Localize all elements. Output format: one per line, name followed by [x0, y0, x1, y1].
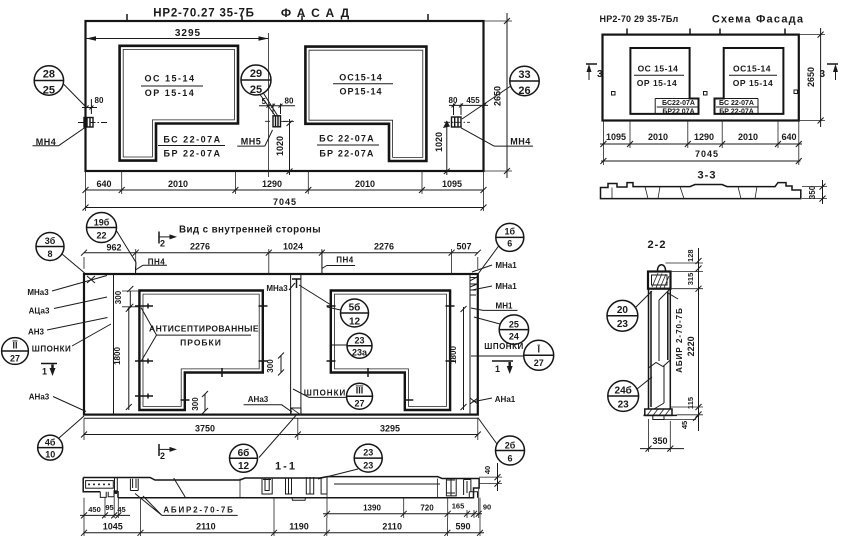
svg-text:20: 20	[617, 305, 629, 316]
svg-text:ШПОНКИ: ШПОНКИ	[304, 389, 346, 398]
svg-text:28: 28	[43, 69, 55, 81]
svg-text:45: 45	[680, 421, 689, 429]
svg-text:1б: 1б	[505, 227, 516, 237]
svg-text:7045: 7045	[695, 149, 719, 159]
svg-text:2-2: 2-2	[648, 239, 667, 251]
svg-text:12: 12	[349, 317, 361, 328]
svg-text:ОР15-14: ОР15-14	[339, 87, 382, 97]
svg-text:24б: 24б	[615, 385, 632, 397]
svg-text:720: 720	[420, 504, 434, 513]
svg-text:45: 45	[117, 505, 125, 514]
svg-text:III: III	[356, 386, 364, 396]
svg-text:2650: 2650	[806, 67, 816, 87]
svg-text:АН3: АН3	[28, 328, 45, 337]
svg-text:315: 315	[686, 273, 695, 286]
svg-text:МНа3: МНа3	[27, 288, 49, 297]
svg-text:3: 3	[597, 69, 603, 80]
svg-text:1095: 1095	[442, 179, 462, 189]
svg-text:БР 22-07А: БР 22-07А	[164, 149, 222, 159]
svg-text:962: 962	[106, 243, 121, 253]
svg-text:ОР 15-14: ОР 15-14	[637, 78, 677, 88]
svg-text:27: 27	[354, 399, 364, 409]
svg-text:1024: 1024	[283, 242, 303, 252]
svg-text:300: 300	[266, 359, 275, 373]
svg-text:АНТИСЕПТИРОВАННЫЕ: АНТИСЕПТИРОВАННЫЕ	[149, 324, 259, 334]
svg-text:ОС15-14: ОС15-14	[733, 64, 771, 74]
svg-text:АБИР2-70-7Б: АБИР2-70-7Б	[163, 506, 234, 515]
svg-text:1020: 1020	[434, 132, 444, 152]
svg-text:1190: 1190	[289, 522, 309, 532]
svg-text:ПН4: ПН4	[336, 256, 354, 265]
svg-text:АНа3: АНа3	[248, 395, 269, 404]
svg-text:1095: 1095	[606, 132, 626, 142]
svg-text:БР 22-07А: БР 22-07А	[719, 108, 754, 115]
svg-text:95: 95	[105, 503, 113, 512]
svg-text:3750: 3750	[195, 424, 215, 434]
svg-text:6б: 6б	[238, 447, 250, 459]
svg-text:МН5: МН5	[241, 137, 262, 147]
svg-text:2010: 2010	[355, 179, 375, 189]
svg-text:3б: 3б	[45, 236, 56, 246]
svg-text:2276: 2276	[374, 242, 394, 252]
svg-text:АНа1: АНа1	[495, 395, 516, 404]
svg-text:24: 24	[509, 331, 519, 341]
svg-text:ФАСАД: ФАСАД	[281, 6, 355, 20]
svg-text:23: 23	[363, 448, 373, 458]
svg-text:300: 300	[114, 290, 123, 304]
svg-text:БС 22-07А: БС 22-07А	[319, 134, 375, 144]
svg-text:МНа1: МНа1	[495, 261, 517, 270]
svg-text:22: 22	[96, 231, 106, 241]
svg-text:2010: 2010	[168, 179, 188, 189]
svg-text:40: 40	[483, 466, 492, 474]
svg-text:23: 23	[618, 400, 630, 411]
svg-text:300: 300	[191, 397, 200, 411]
svg-text:2010: 2010	[648, 132, 668, 142]
svg-text:МНа3: МНа3	[266, 284, 288, 293]
svg-text:6: 6	[507, 239, 512, 249]
svg-text:ОС15-14: ОС15-14	[339, 73, 383, 83]
svg-text:25: 25	[250, 84, 262, 96]
svg-text:НР2-70 29 35-7Бл: НР2-70 29 35-7Бл	[600, 14, 679, 24]
svg-text:ПРОБКИ: ПРОБКИ	[180, 338, 222, 348]
svg-text:ОР 15-14: ОР 15-14	[145, 88, 196, 98]
svg-text:7045: 7045	[273, 197, 297, 207]
svg-text:1800: 1800	[113, 347, 122, 365]
svg-text:ОС 15-14: ОС 15-14	[144, 74, 195, 84]
svg-text:БС 22-07А: БС 22-07А	[163, 135, 221, 145]
svg-text:ОС 15-14: ОС 15-14	[638, 64, 679, 74]
svg-text:2010: 2010	[738, 132, 758, 142]
svg-text:115: 115	[686, 397, 695, 409]
svg-text:АЦа3: АЦа3	[29, 307, 50, 316]
svg-text:507: 507	[456, 242, 471, 252]
svg-text:1045: 1045	[103, 522, 123, 532]
svg-text:23: 23	[363, 461, 373, 471]
svg-text:128: 128	[686, 249, 695, 262]
svg-text:МН4: МН4	[510, 136, 531, 146]
svg-text:5б: 5б	[349, 302, 361, 314]
svg-text:27: 27	[534, 358, 544, 368]
svg-text:Схема Фасада: Схема Фасада	[712, 14, 804, 26]
svg-text:БР 22-07А: БР 22-07А	[319, 149, 374, 159]
svg-text:23: 23	[354, 336, 364, 346]
svg-text:МН1: МН1	[496, 301, 513, 310]
svg-text:12: 12	[238, 461, 250, 472]
svg-text:590: 590	[455, 522, 470, 532]
svg-text:640: 640	[96, 179, 111, 189]
svg-text:25: 25	[43, 85, 55, 97]
svg-text:10: 10	[45, 450, 55, 460]
svg-text:25: 25	[509, 319, 519, 329]
svg-text:450: 450	[88, 505, 101, 514]
svg-text:1290: 1290	[694, 132, 714, 142]
svg-text:3295: 3295	[175, 28, 201, 39]
svg-text:БР22 07А: БР22 07А	[662, 108, 694, 115]
svg-text:1-1: 1-1	[275, 461, 297, 473]
svg-text:19б: 19б	[94, 218, 110, 228]
svg-text:БС 22-07А: БС 22-07А	[719, 100, 754, 107]
svg-text:I: I	[537, 345, 540, 355]
svg-text:ШПОНКИ: ШПОНКИ	[32, 345, 71, 354]
svg-text:5: 5	[261, 97, 266, 106]
svg-text:350: 350	[808, 185, 817, 199]
svg-text:350: 350	[652, 436, 667, 446]
svg-text:2: 2	[160, 239, 165, 249]
svg-text:БС22-07А: БС22-07А	[662, 100, 695, 107]
svg-text:455: 455	[466, 96, 480, 105]
svg-text:23: 23	[617, 319, 629, 330]
svg-text:1290: 1290	[262, 179, 282, 189]
svg-text:1: 1	[495, 364, 500, 374]
svg-text:2276: 2276	[190, 242, 210, 252]
svg-text:МНа1: МНа1	[495, 282, 517, 291]
svg-text:1: 1	[42, 367, 47, 377]
svg-text:2220: 2220	[686, 336, 696, 356]
svg-text:165: 165	[452, 502, 465, 511]
svg-text:АБИР 2-70-7Б: АБИР 2-70-7Б	[675, 307, 684, 373]
svg-text:3295: 3295	[380, 424, 400, 434]
svg-text:23а: 23а	[352, 348, 368, 358]
svg-text:АНа3: АНа3	[29, 393, 50, 402]
svg-text:1800: 1800	[449, 346, 458, 364]
svg-text:26: 26	[518, 85, 530, 97]
svg-text:ШПОНКИ: ШПОНКИ	[484, 342, 523, 351]
svg-text:2110: 2110	[382, 522, 402, 532]
svg-text:НР2-70.27 35-7Б: НР2-70.27 35-7Б	[153, 8, 254, 20]
svg-text:80: 80	[285, 97, 294, 106]
svg-text:90: 90	[483, 503, 491, 512]
svg-text:2: 2	[160, 451, 165, 461]
svg-text:ОР 15-14: ОР 15-14	[733, 78, 773, 88]
svg-text:4б: 4б	[45, 438, 56, 448]
svg-text:27: 27	[10, 354, 20, 364]
svg-text:2110: 2110	[196, 522, 216, 532]
svg-text:1390: 1390	[363, 504, 381, 513]
svg-text:3-3: 3-3	[698, 170, 717, 182]
svg-text:80: 80	[95, 96, 104, 105]
svg-text:640: 640	[781, 132, 796, 142]
svg-text:2650: 2650	[493, 86, 503, 106]
svg-text:6: 6	[507, 454, 512, 464]
svg-text:8: 8	[47, 249, 52, 259]
svg-text:II: II	[12, 341, 17, 351]
svg-text:29: 29	[250, 68, 262, 80]
svg-text:2б: 2б	[505, 441, 516, 451]
svg-text:Вид с внутренней стороны: Вид с внутренней стороны	[179, 225, 321, 236]
svg-text:1020: 1020	[275, 136, 285, 156]
svg-text:33: 33	[518, 69, 530, 81]
